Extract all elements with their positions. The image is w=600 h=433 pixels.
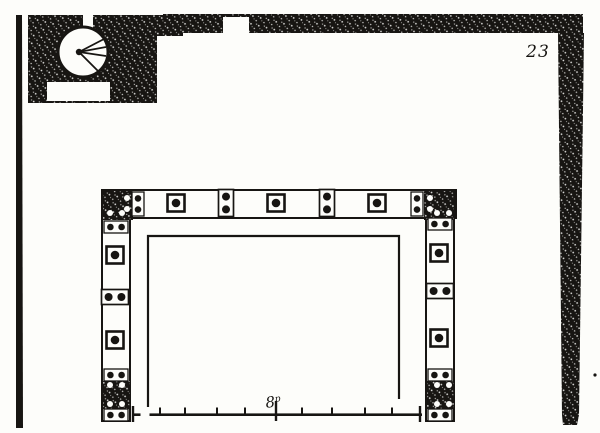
dot-pair — [104, 221, 128, 233]
scale-end-tick — [419, 406, 421, 422]
right-border-bar — [558, 33, 584, 425]
top-border-gap — [223, 17, 249, 33]
dot-pair — [132, 192, 144, 216]
block-rivet-dot — [124, 195, 130, 201]
block-rivet-dot — [427, 195, 433, 201]
dot-pair — [428, 218, 452, 230]
dot-pair — [411, 192, 423, 216]
bolt — [369, 195, 386, 212]
dot-pair — [104, 409, 128, 421]
block-rivet-dot — [119, 401, 125, 407]
engraving-plate-page: 23 8p — [0, 0, 600, 433]
block-rivet-dot — [446, 210, 452, 216]
scale-label: 8p — [265, 392, 282, 412]
block-rivet-dot — [434, 210, 440, 216]
bolt — [431, 330, 448, 347]
block-rivet-dot — [124, 206, 130, 212]
block-rivets-layer — [107, 195, 452, 407]
block-rivet-dot — [119, 210, 125, 216]
scale-minor-tick — [391, 408, 393, 415]
dot-pair — [320, 190, 335, 217]
dot-pair — [102, 290, 129, 305]
bolt — [168, 195, 185, 212]
vignette-recess — [47, 82, 110, 101]
bolt — [431, 245, 448, 262]
dot-pair — [428, 409, 452, 421]
corner-block-top-left — [103, 191, 133, 220]
dot-pair — [104, 369, 128, 381]
ink-speck — [593, 373, 596, 376]
block-rivet-dot — [107, 210, 113, 216]
scale-minor-tick — [301, 408, 303, 415]
scale-minor-tick — [244, 408, 246, 415]
dot-pair — [427, 284, 454, 299]
bolt — [107, 247, 124, 264]
scale-minor-tick — [184, 408, 186, 415]
scale-minor-tick — [331, 408, 333, 415]
dial-hub — [76, 49, 82, 55]
scale-bar: 8p — [132, 392, 422, 422]
frame-plan — [102, 190, 457, 422]
left-border-rule — [16, 15, 23, 428]
plate-drawing: 23 8p — [0, 0, 600, 433]
bolt — [268, 195, 285, 212]
scale-minor-tick — [216, 408, 218, 415]
inner-opening-outline — [148, 236, 399, 407]
bolt — [107, 332, 124, 349]
scale-minor-tick — [364, 408, 366, 415]
corner-vignette — [28, 15, 183, 103]
block-rivet-dot — [434, 401, 440, 407]
page-number-label: 23 — [525, 42, 550, 62]
block-rivet-dot — [434, 382, 440, 388]
dot-pair — [428, 369, 452, 381]
dot-pair — [219, 190, 234, 217]
scale-minor-tick — [159, 408, 161, 415]
block-rivet-dot — [107, 382, 113, 388]
fasteners-layer — [102, 190, 454, 422]
block-rivet-dot — [446, 401, 452, 407]
block-rivet-dot — [107, 401, 113, 407]
scale-bar-gap — [141, 413, 150, 418]
scale-end-tick — [132, 406, 134, 422]
scale-bar-line — [133, 413, 422, 416]
block-rivet-dot — [446, 382, 452, 388]
block-rivet-dot — [119, 382, 125, 388]
block-rivet-dot — [427, 206, 433, 212]
